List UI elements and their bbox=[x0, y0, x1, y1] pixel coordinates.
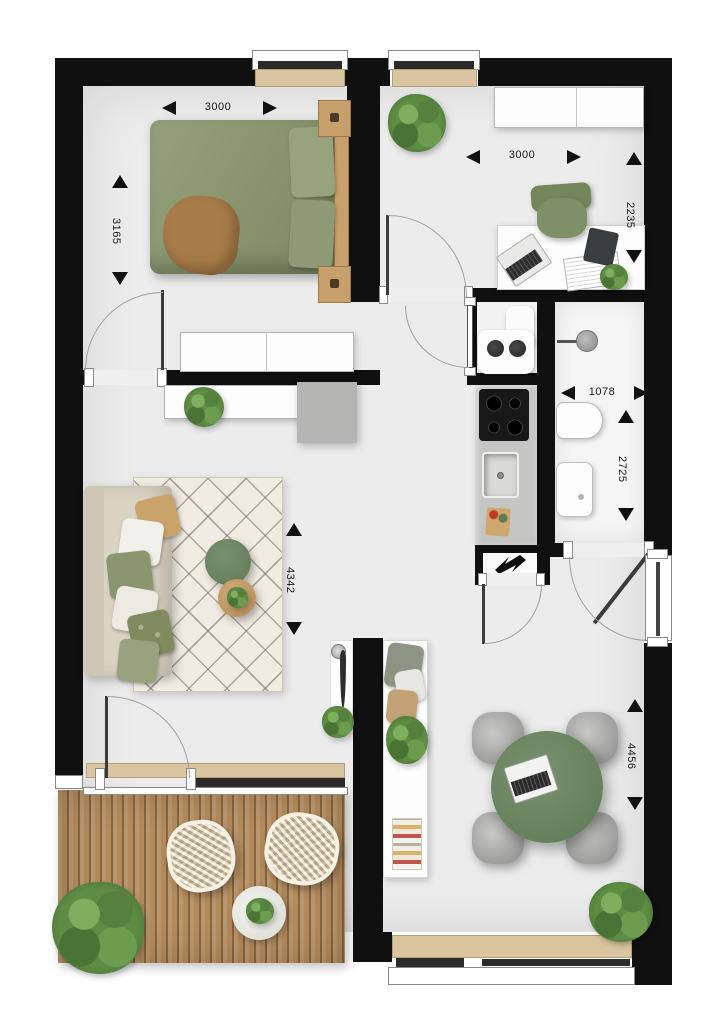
desk-plant bbox=[600, 264, 628, 290]
dimension-arrow bbox=[286, 622, 302, 635]
dimension-arrow bbox=[112, 175, 128, 188]
washbasin bbox=[556, 462, 593, 517]
wall bbox=[644, 58, 672, 557]
door-jamb bbox=[647, 549, 668, 559]
wall-office-bottom bbox=[470, 288, 644, 302]
basin-drain bbox=[578, 494, 584, 500]
dimension-arrow bbox=[627, 797, 643, 810]
bed-pillow bbox=[288, 199, 335, 269]
washer-knob bbox=[487, 340, 504, 357]
dimension-arrow bbox=[466, 150, 480, 164]
washing-machine bbox=[478, 330, 534, 374]
door-opening bbox=[570, 543, 648, 557]
cutting-board bbox=[485, 507, 511, 537]
nightstand-knob bbox=[330, 113, 339, 122]
dimension-label: 3165 bbox=[110, 203, 122, 259]
coffee-table-green bbox=[205, 539, 251, 585]
dimension-label: 4342 bbox=[284, 551, 296, 609]
partition-plant bbox=[322, 706, 354, 738]
shower-head bbox=[576, 330, 598, 352]
niche-door-arc bbox=[405, 306, 469, 368]
dimension-label: 3000 bbox=[196, 101, 240, 113]
table-plant bbox=[246, 898, 274, 924]
door-jamb bbox=[647, 637, 668, 647]
dimension-label: 3000 bbox=[500, 149, 544, 161]
wall-bedroom-office bbox=[347, 86, 380, 302]
side-table-plant bbox=[227, 587, 248, 608]
dimension-arrow bbox=[567, 150, 581, 164]
toilet bbox=[556, 402, 603, 439]
dimension-arrow bbox=[162, 101, 176, 115]
dimension-arrow bbox=[263, 101, 277, 115]
dining-plant bbox=[589, 882, 653, 942]
sofa-backrest bbox=[84, 486, 104, 676]
dimension-label: 2235 bbox=[624, 186, 636, 244]
shelf-plant bbox=[386, 716, 428, 764]
window-sill bbox=[392, 69, 477, 87]
cooktop bbox=[479, 389, 529, 441]
washer-knob bbox=[509, 340, 526, 357]
window-glazing bbox=[258, 61, 342, 69]
balcony-door-glazing bbox=[196, 778, 345, 787]
wall-bathroom-left bbox=[537, 290, 555, 557]
console-plant bbox=[184, 387, 224, 427]
dimension-arrow bbox=[627, 699, 643, 712]
door-jamb bbox=[84, 368, 94, 387]
wall-niche-bottom bbox=[467, 373, 537, 385]
sink-drain bbox=[497, 472, 504, 479]
wardrobe bbox=[180, 332, 354, 372]
office-door-arc bbox=[388, 215, 467, 297]
wall bbox=[644, 643, 672, 937]
wall bbox=[55, 58, 83, 778]
office-chair-seat bbox=[537, 198, 587, 238]
dimension-arrow bbox=[618, 410, 634, 423]
sofa-pillow bbox=[116, 638, 160, 684]
window-sill bbox=[392, 935, 632, 958]
wall bbox=[345, 58, 390, 86]
bathroom-door-arc bbox=[569, 557, 649, 641]
office-plant bbox=[388, 94, 446, 152]
closet-door-arc bbox=[484, 584, 542, 644]
wall bbox=[632, 932, 672, 985]
window-glazing bbox=[396, 958, 464, 967]
office-cabinet bbox=[494, 87, 644, 128]
window bbox=[388, 967, 635, 985]
wall bbox=[55, 58, 255, 86]
dimension-arrow bbox=[618, 508, 634, 521]
shelf-books bbox=[392, 818, 422, 870]
bedroom-door-arc bbox=[85, 292, 163, 370]
dimension-arrow bbox=[561, 386, 575, 400]
window-glazing bbox=[482, 959, 630, 966]
floor-plan: 3000 3165 3000 2235 bbox=[0, 0, 726, 1024]
cabinet-divider bbox=[576, 88, 577, 127]
wardrobe-divider bbox=[266, 333, 267, 371]
dimension-arrow bbox=[626, 152, 642, 165]
dimension-label: 4456 bbox=[625, 727, 637, 785]
dimension-arrow bbox=[286, 523, 302, 536]
wall bbox=[478, 58, 672, 86]
dimension-label: 1078 bbox=[580, 386, 624, 398]
dimension-arrow bbox=[634, 386, 648, 400]
balcony-door-frame bbox=[83, 787, 348, 795]
wall-partition bbox=[353, 638, 383, 937]
door-jamb bbox=[464, 367, 476, 376]
dimension-arrow bbox=[112, 272, 128, 285]
bed-headboard bbox=[334, 118, 349, 276]
tv-cabinet bbox=[297, 382, 357, 443]
balcony-door-arc bbox=[107, 696, 190, 778]
wall-end-cap bbox=[55, 775, 83, 789]
door-jamb bbox=[95, 768, 105, 790]
nightstand-knob bbox=[330, 279, 339, 288]
fern-plant bbox=[52, 882, 144, 974]
window-sill bbox=[255, 69, 345, 87]
entrance-door-leaf bbox=[656, 562, 660, 636]
dimension-arrow bbox=[626, 250, 642, 263]
window-glazing bbox=[394, 61, 474, 69]
dimension-label: 2725 bbox=[616, 440, 628, 498]
door-opening bbox=[90, 370, 161, 385]
